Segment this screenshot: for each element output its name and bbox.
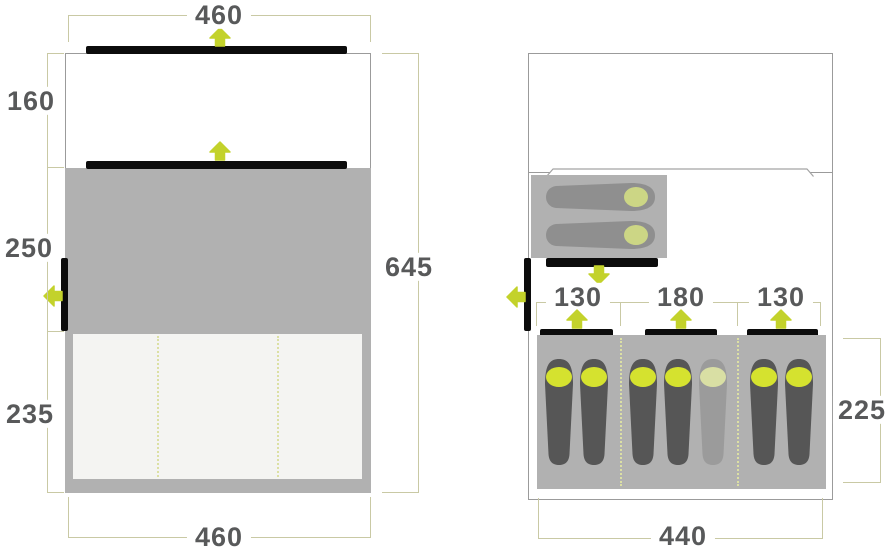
dim-tick bbox=[737, 302, 738, 326]
arrow-up-icon bbox=[209, 27, 231, 47]
middle-door-marker bbox=[86, 161, 347, 169]
canopy-edge bbox=[546, 164, 814, 173]
dim-label-cabin-left: 130 bbox=[546, 283, 610, 311]
dim-tick bbox=[47, 331, 64, 332]
arrow-up-icon bbox=[670, 309, 692, 329]
dim-label-sleeping-area-width: 440 bbox=[651, 522, 715, 550]
dim-label-sleeping-area-depth: 225 bbox=[833, 396, 891, 424]
dim-label-cabin-right: 130 bbox=[749, 283, 813, 311]
sleeping-area bbox=[537, 335, 826, 489]
left-inner-tent bbox=[73, 334, 362, 479]
dim-tick bbox=[47, 167, 64, 168]
arrow-up-icon bbox=[566, 309, 588, 329]
dim-tick bbox=[370, 15, 371, 42]
dim-tick bbox=[47, 53, 64, 54]
dim-label-sleeping-depth: 235 bbox=[0, 400, 62, 428]
dim-tick bbox=[382, 492, 419, 493]
dim-tick bbox=[536, 302, 537, 326]
dim-tick bbox=[382, 53, 419, 54]
dim-label-total-depth: 645 bbox=[377, 253, 441, 281]
arrow-up-icon bbox=[209, 141, 231, 161]
cabin-divider bbox=[737, 338, 739, 486]
inner-tent-divider bbox=[277, 336, 279, 477]
dim-tick bbox=[538, 498, 539, 539]
dim-tick bbox=[843, 338, 880, 339]
dim-label-living-depth: 250 bbox=[0, 234, 61, 262]
dim-tick bbox=[68, 497, 69, 538]
dim-tick bbox=[843, 482, 880, 483]
dim-tick bbox=[822, 498, 823, 539]
front-door-marker bbox=[86, 46, 347, 54]
tent-floorplan-diagram: 460 160 250 235 645 460 130 180 130 bbox=[0, 0, 891, 555]
dim-label-cabin-middle: 180 bbox=[649, 283, 713, 311]
dim-tick bbox=[68, 15, 69, 42]
dim-label-bottom-width: 460 bbox=[187, 523, 251, 551]
left-living-area bbox=[65, 168, 371, 332]
dim-tick bbox=[820, 302, 821, 326]
dim-tick bbox=[370, 497, 371, 538]
dim-label-front-depth: 160 bbox=[0, 87, 63, 115]
dim-label-top-width: 460 bbox=[187, 1, 251, 29]
cabin-divider bbox=[620, 338, 622, 486]
arrow-up-icon bbox=[770, 309, 792, 329]
side-sleeping-pod bbox=[531, 175, 667, 258]
arrow-left-icon bbox=[42, 286, 64, 306]
dim-tick bbox=[620, 302, 621, 326]
arrow-left-icon bbox=[505, 287, 527, 307]
inner-tent-divider bbox=[157, 336, 159, 477]
dim-tick bbox=[47, 492, 64, 493]
